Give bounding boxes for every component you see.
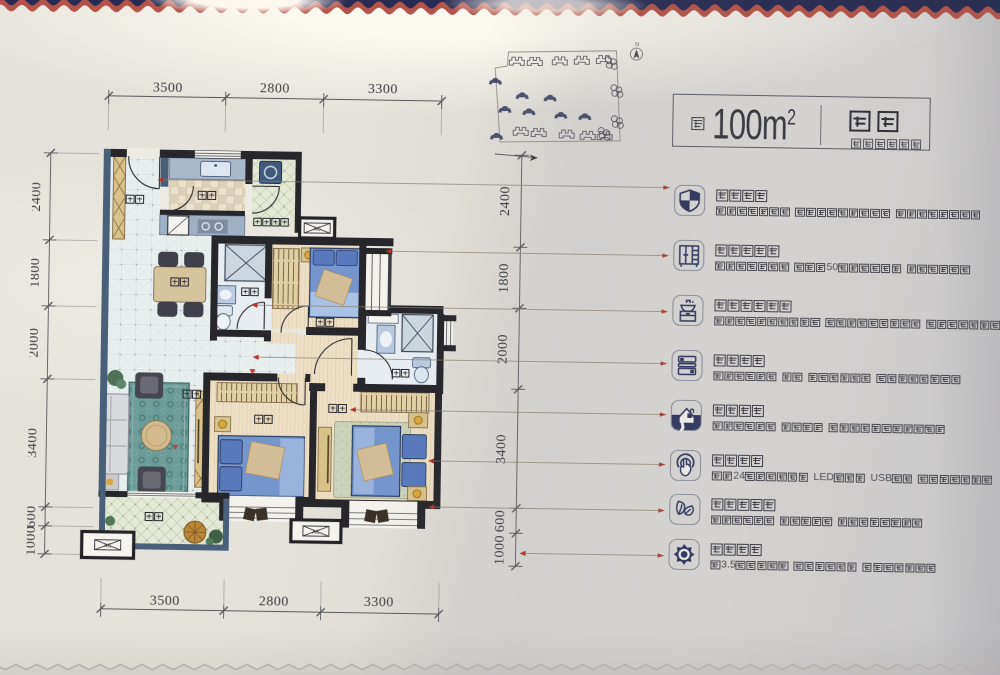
svg-text:1800: 1800 xyxy=(497,263,512,293)
svg-text:3400: 3400 xyxy=(494,434,509,464)
svg-text:2800: 2800 xyxy=(259,594,289,609)
svg-text:2800: 2800 xyxy=(260,81,290,96)
svg-text:600: 600 xyxy=(25,505,39,528)
svg-text:3500: 3500 xyxy=(150,594,180,609)
svg-text:3400: 3400 xyxy=(25,428,40,458)
svg-text:3300: 3300 xyxy=(364,595,394,610)
svg-text:2000: 2000 xyxy=(27,328,42,358)
svg-text:AC: AC xyxy=(104,543,112,549)
svg-text:2000: 2000 xyxy=(496,334,511,364)
svg-text:AC: AC xyxy=(312,530,320,536)
svg-text:2400: 2400 xyxy=(498,186,513,216)
svg-text:N: N xyxy=(635,42,639,48)
svg-text:2400: 2400 xyxy=(29,182,44,212)
svg-text:3500: 3500 xyxy=(153,81,183,96)
svg-text:1000: 1000 xyxy=(492,535,507,565)
svg-text:AC: AC xyxy=(313,227,321,233)
svg-text:1000: 1000 xyxy=(25,526,39,556)
svg-text:1800: 1800 xyxy=(28,258,43,288)
svg-text:600: 600 xyxy=(493,510,508,533)
svg-text:3300: 3300 xyxy=(368,82,398,97)
